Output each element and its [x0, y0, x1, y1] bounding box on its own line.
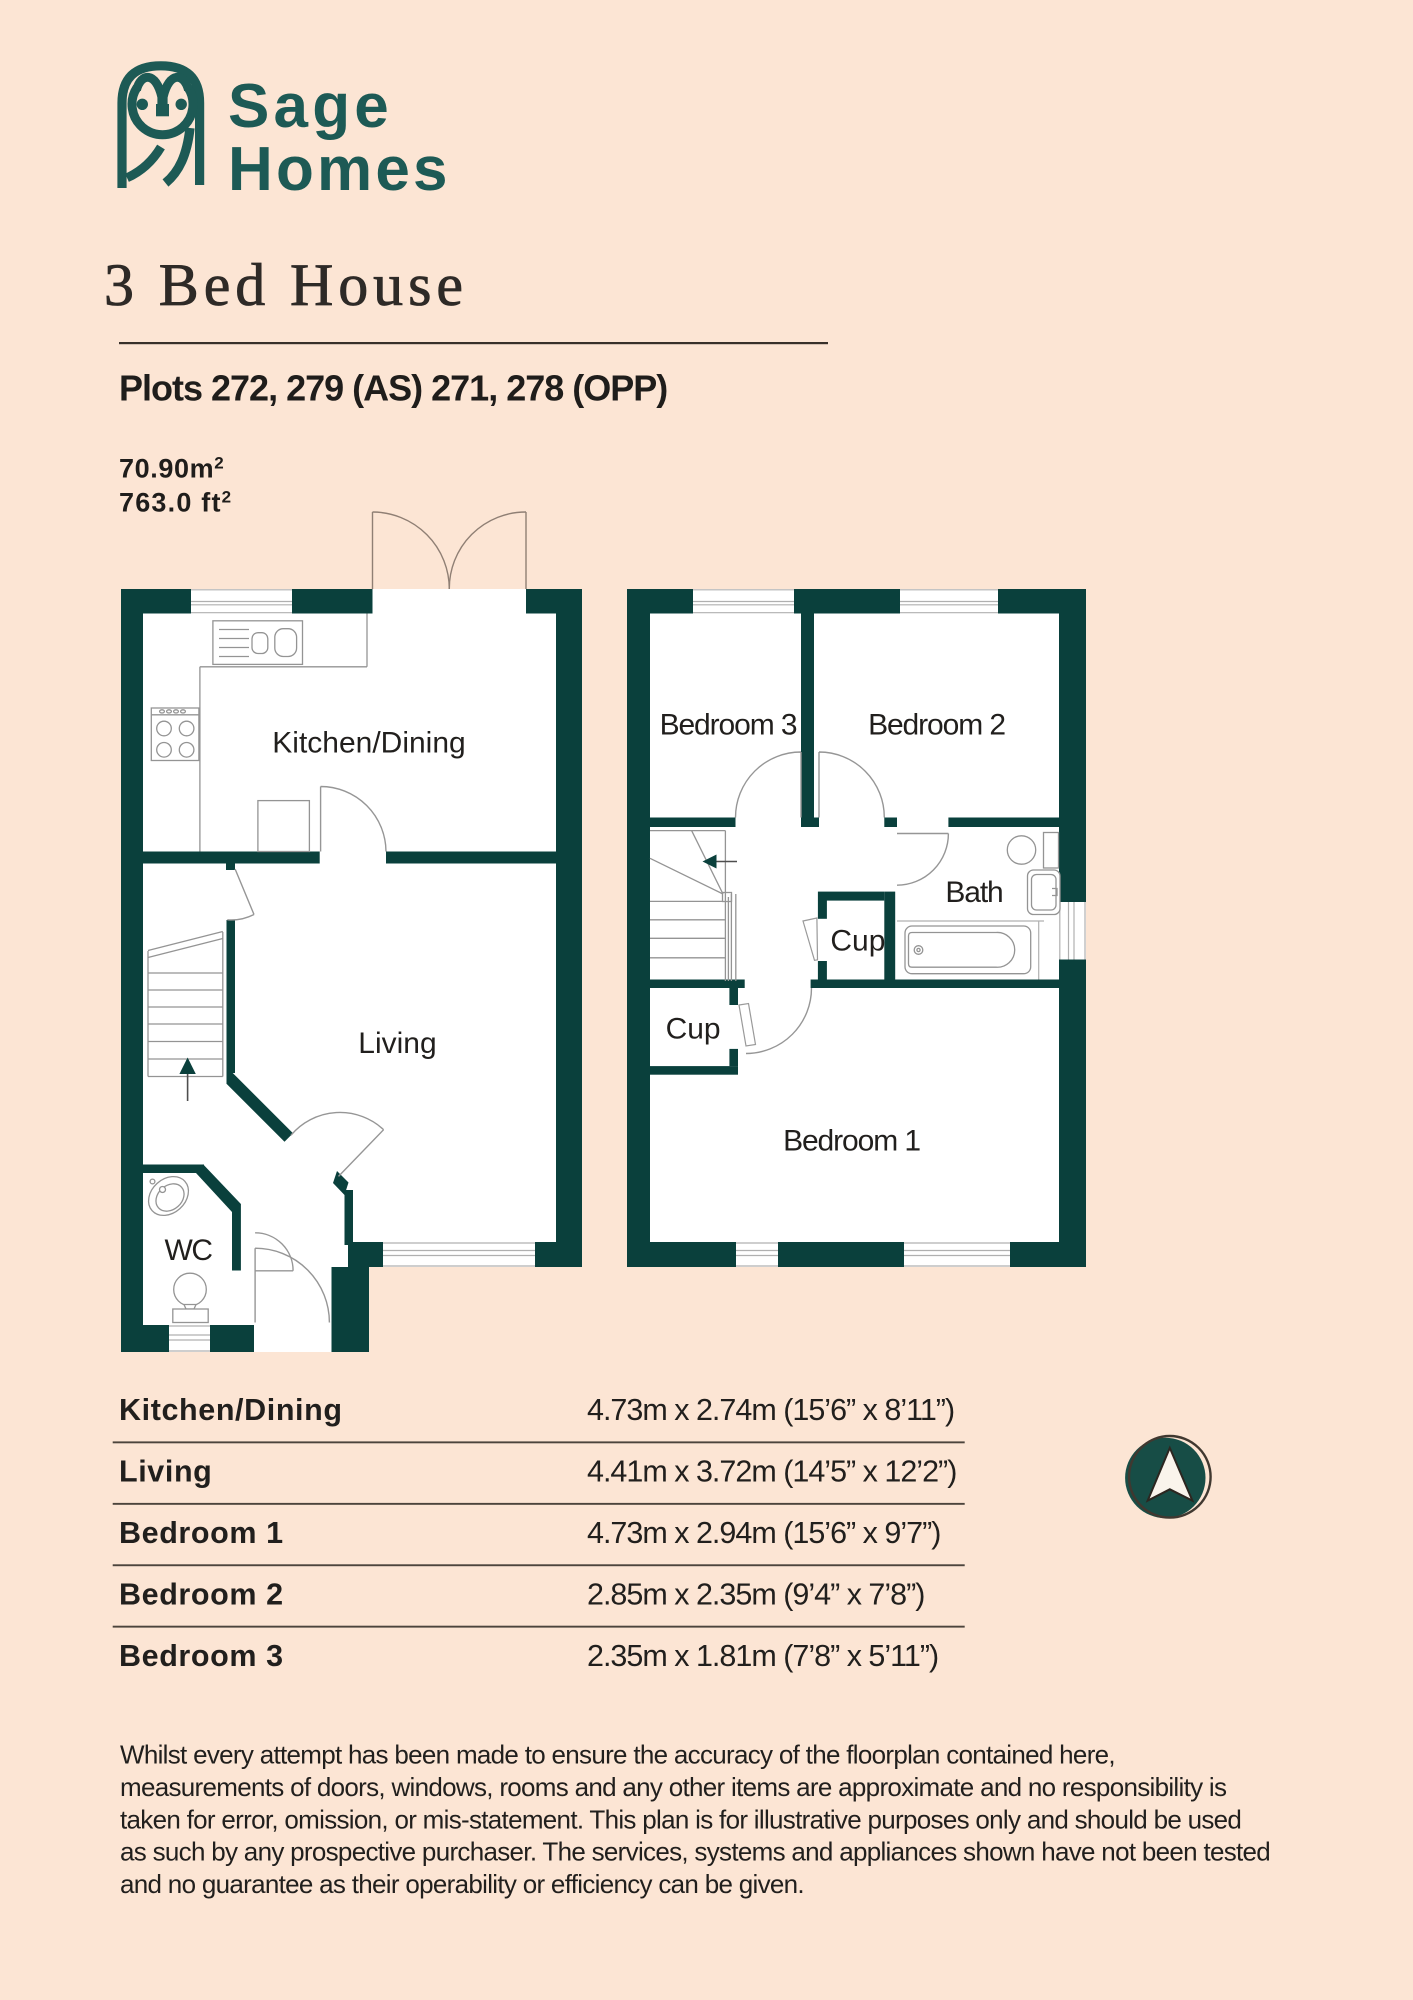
svg-text:Bedroom 3: Bedroom 3 [660, 709, 797, 742]
svg-text:taken for error, omission, or: taken for error, omission, or mis-statem… [120, 1804, 1241, 1834]
svg-text:763.0 ft2: 763.0 ft2 [119, 488, 232, 518]
svg-text:Whilst every attempt has been: Whilst every attempt has been made to en… [120, 1740, 1115, 1770]
svg-text:WC: WC [165, 1234, 213, 1267]
svg-text:Cup: Cup [830, 925, 885, 958]
svg-text:Cup: Cup [666, 1012, 721, 1045]
svg-text:Bedroom 2: Bedroom 2 [119, 1577, 284, 1611]
svg-text:4.41m x 3.72m (14’5” x 12’2”): 4.41m x 3.72m (14’5” x 12’2”) [587, 1455, 956, 1489]
svg-text:Homes: Homes [228, 135, 451, 204]
svg-text:measurements of doors, windows: measurements of doors, windows, rooms an… [120, 1772, 1227, 1802]
svg-text:2.85m x 2.35m (9’4” x 7’8”): 2.85m x 2.35m (9’4” x 7’8”) [587, 1577, 924, 1611]
svg-text:4.73m x 2.94m (15’6” x 9’7”): 4.73m x 2.94m (15’6” x 9’7”) [587, 1516, 940, 1550]
svg-text:as such by any prospective pur: as such by any prospective purchaser. Th… [120, 1837, 1270, 1867]
svg-text:4.73m x 2.74m (15’6” x 8’11”): 4.73m x 2.74m (15’6” x 8’11”) [587, 1393, 954, 1427]
svg-text:Plots 272, 279 (AS) 271, 278 (: Plots 272, 279 (AS) 271, 278 (OPP) [119, 368, 667, 409]
svg-text:2.35m x 1.81m (7’8” x 5’11”): 2.35m x 1.81m (7’8” x 5’11”) [587, 1639, 938, 1673]
svg-text:Bedroom 1: Bedroom 1 [119, 1516, 284, 1550]
svg-text:70.90m2: 70.90m2 [119, 454, 224, 484]
svg-text:3 Bed House: 3 Bed House [104, 252, 468, 318]
svg-text:Kitchen/Dining: Kitchen/Dining [119, 1393, 343, 1427]
svg-text:Sage: Sage [228, 72, 393, 141]
svg-text:Kitchen/Dining: Kitchen/Dining [272, 727, 465, 760]
svg-text:Bedroom 2: Bedroom 2 [868, 709, 1005, 742]
svg-text:Bath: Bath [945, 876, 1002, 909]
svg-text:Living: Living [358, 1027, 436, 1060]
svg-text:Bedroom 1: Bedroom 1 [783, 1125, 920, 1158]
svg-text:and no guarantee as their oper: and no guarantee as their operability or… [120, 1869, 804, 1899]
svg-text:Bedroom 3: Bedroom 3 [119, 1639, 284, 1673]
svg-text:Living: Living [119, 1455, 212, 1489]
